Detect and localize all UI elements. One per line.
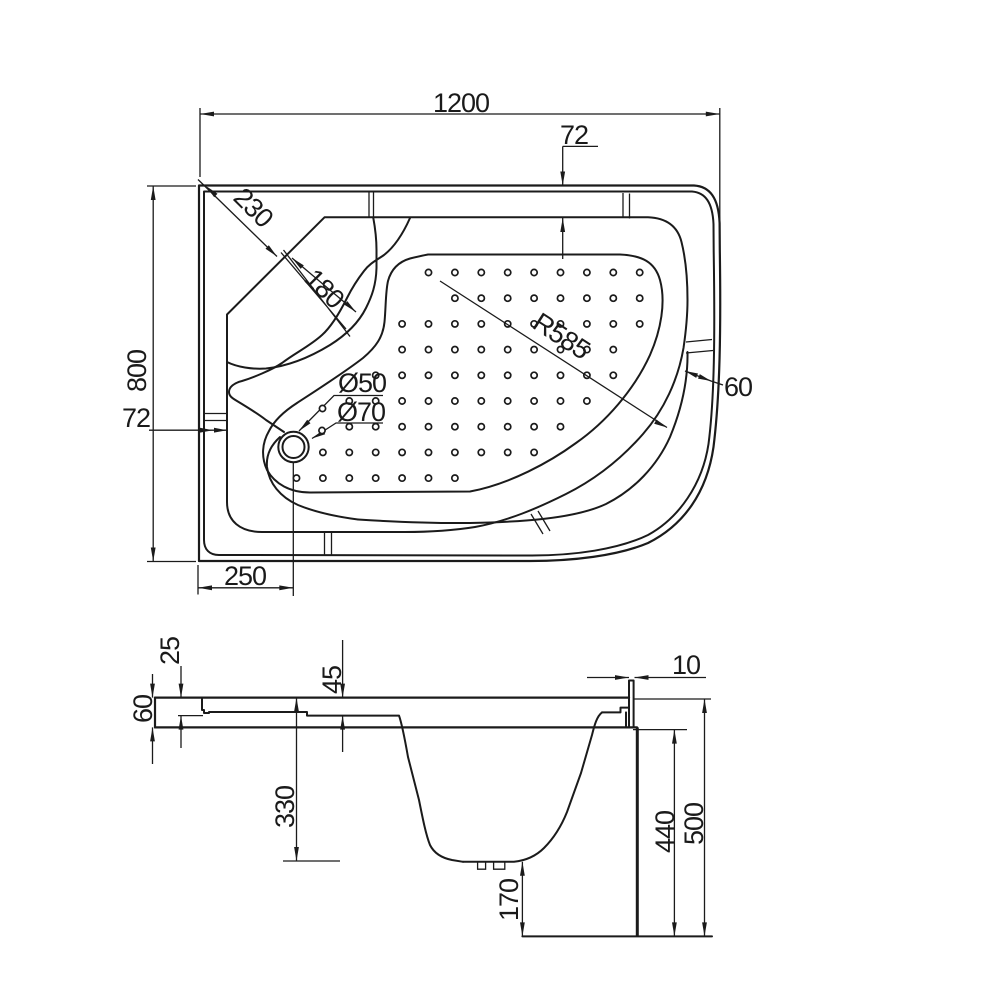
svg-text:Ø50: Ø50 [338, 368, 386, 398]
svg-text:72: 72 [560, 120, 588, 150]
svg-text:170: 170 [494, 879, 524, 921]
svg-text:60: 60 [128, 695, 158, 723]
svg-text:500: 500 [679, 803, 709, 845]
svg-text:800: 800 [122, 350, 152, 392]
svg-text:250: 250 [224, 561, 266, 591]
svg-text:330: 330 [270, 786, 300, 828]
svg-text:10: 10 [672, 650, 700, 680]
svg-text:45: 45 [317, 666, 347, 694]
svg-text:Ø70: Ø70 [337, 397, 385, 427]
svg-text:72: 72 [122, 403, 150, 433]
svg-text:25: 25 [155, 637, 185, 665]
svg-text:60: 60 [724, 372, 752, 402]
svg-text:440: 440 [650, 811, 680, 853]
svg-text:1200: 1200 [433, 88, 489, 118]
